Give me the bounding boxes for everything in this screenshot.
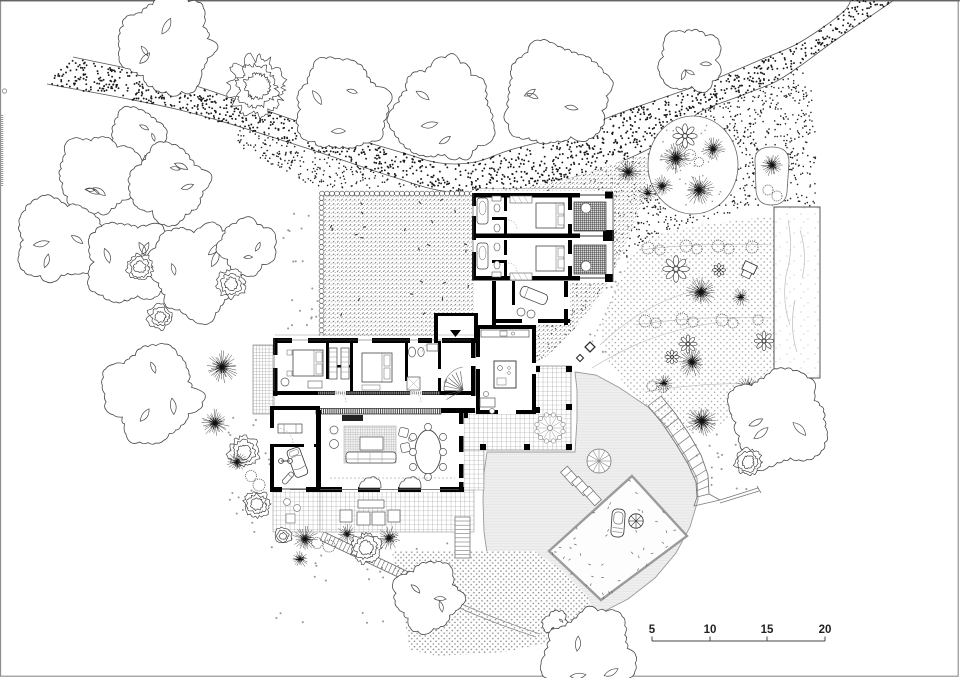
svg-text:15: 15 bbox=[761, 624, 774, 636]
svg-text:5: 5 bbox=[649, 624, 656, 636]
svg-text:10: 10 bbox=[704, 624, 717, 636]
svg-text:20: 20 bbox=[819, 624, 832, 636]
